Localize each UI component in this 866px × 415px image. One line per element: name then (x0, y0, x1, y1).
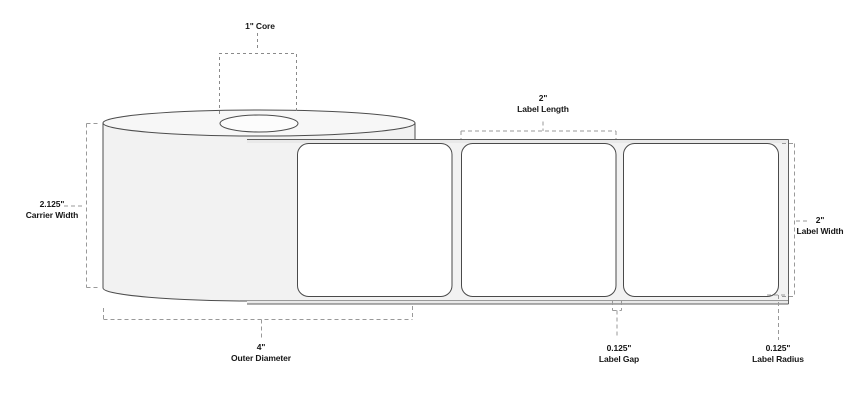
label-2 (462, 144, 617, 297)
label-length-label: Label Length (517, 104, 569, 115)
outer-diameter-label: Outer Diameter (231, 353, 291, 364)
label-radius-value: 0.125" (752, 343, 804, 354)
core-callout-text: 1" Core (245, 21, 275, 32)
carrier-width-callout: 2.125" Carrier Width (26, 199, 78, 221)
liner-bottom-band (247, 301, 789, 305)
carrier-width-value: 2.125" (26, 199, 78, 210)
label-gap-label: Label Gap (599, 354, 639, 365)
label-radius-label: Label Radius (752, 354, 804, 365)
label-gap-callout: 0.125" Label Gap (599, 343, 639, 365)
liner-strip (240, 140, 789, 305)
label-gap-dimension-lines (613, 301, 622, 338)
label-width-value: 2" (797, 215, 844, 226)
core-dashed-outline (220, 54, 297, 115)
core-dimension-lines (220, 33, 297, 114)
carrier-width-label: Carrier Width (26, 210, 78, 221)
outer-diameter-dimension-lines (104, 306, 413, 340)
diagram-canvas (0, 0, 866, 415)
label-width-label: Label Width (797, 226, 844, 237)
label-gap-value: 0.125" (599, 343, 639, 354)
liner-top-band (247, 140, 789, 144)
label-length-value: 2" (517, 93, 569, 104)
label-3 (624, 144, 779, 297)
label-roll-diagram: 1" Core 2" Label Length 2.125" Carrier W… (0, 0, 866, 415)
outer-diameter-callout: 4" Outer Diameter (231, 342, 291, 364)
label-radius-callout: 0.125" Label Radius (752, 343, 804, 365)
label-length-callout: 2" Label Length (517, 93, 569, 115)
core-callout: 1" Core (245, 21, 275, 32)
label-width-callout: 2" Label Width (797, 215, 844, 237)
label-1 (298, 144, 453, 297)
outer-diameter-value: 4" (231, 342, 291, 353)
roll-core-hole (220, 115, 298, 132)
label-length-dimension-lines (461, 122, 616, 140)
